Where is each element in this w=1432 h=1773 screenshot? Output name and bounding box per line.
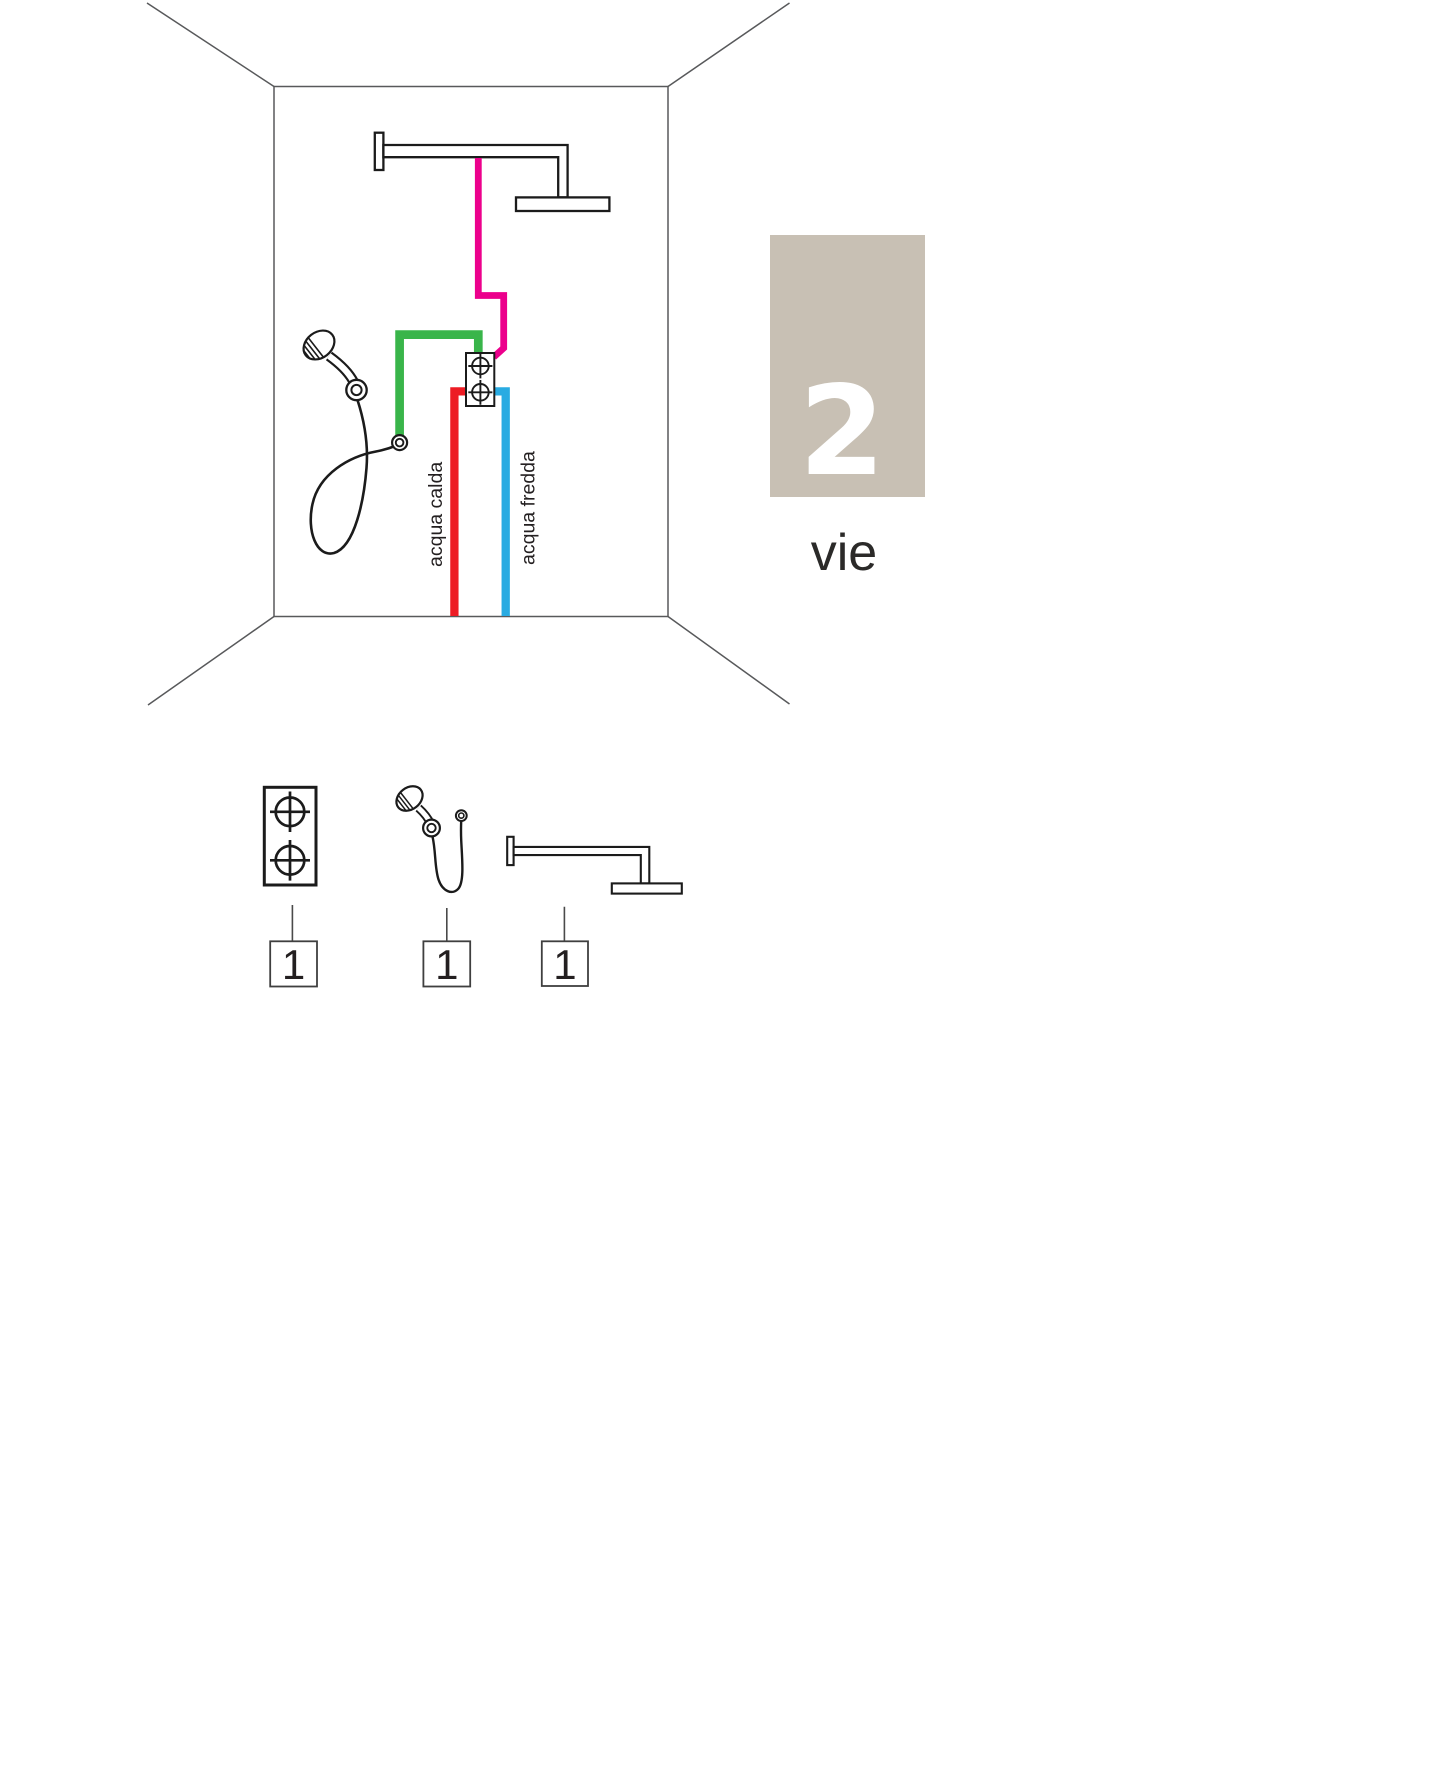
callout-leader-lines <box>292 905 564 941</box>
quantity-callouts: 1 1 1 <box>270 905 588 988</box>
diagram-canvas: acqua calda acqua fredda 2 vie <box>0 0 1432 1773</box>
hose-connection-ring-inner <box>396 439 404 447</box>
qty-value-shower-arm: 1 <box>553 941 576 988</box>
shower-head <box>516 197 609 211</box>
qty-value-hand-shower: 1 <box>435 941 458 988</box>
qty-box-hand-shower: 1 <box>423 941 470 988</box>
hot-water-label: acqua calda <box>425 462 447 567</box>
part-hand-shower-icon <box>392 781 467 892</box>
qty-box-shower-arm: 1 <box>542 941 588 988</box>
ways-number: 2 <box>799 360 885 504</box>
ways-word: vie <box>811 524 877 582</box>
part-shower-arm-icon <box>507 837 682 894</box>
shower-arm-flange <box>375 133 384 170</box>
ways-badge: 2 vie <box>770 235 925 582</box>
back-wall <box>274 87 668 617</box>
qty-box-mixer: 1 <box>270 941 317 988</box>
mixer-valve <box>466 353 494 406</box>
qty-value-mixer: 1 <box>282 941 305 988</box>
installation-diagram-page: acqua calda acqua fredda 2 vie <box>0 0 1432 1773</box>
part-mixer-valve-icon <box>264 787 316 885</box>
wall-bracket-ring-inner <box>351 385 361 395</box>
cold-water-label: acqua fredda <box>518 451 540 565</box>
